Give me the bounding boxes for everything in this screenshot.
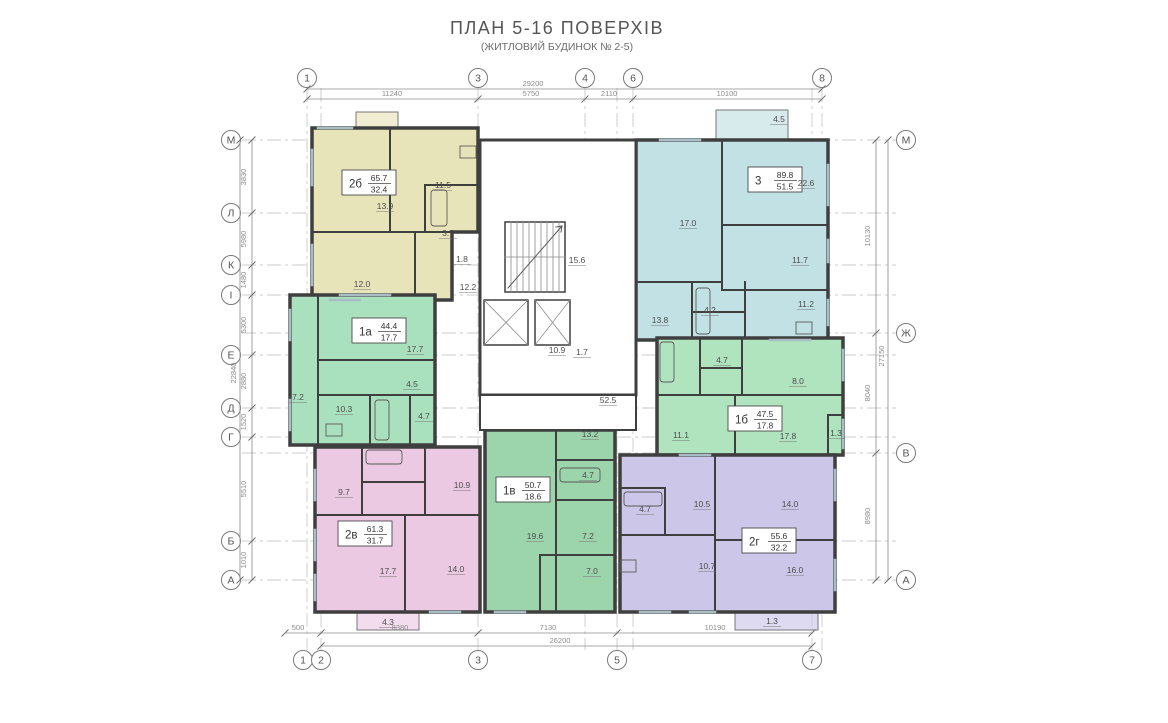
axis-bubble-label: 3 bbox=[475, 655, 481, 667]
dimension-label: 8040 bbox=[863, 385, 872, 402]
apartment-2b-floor bbox=[312, 128, 478, 300]
room-area-label: 12.2 bbox=[460, 282, 477, 292]
room-area-label: 1.7 bbox=[576, 347, 588, 357]
dimension-label: 11240 bbox=[382, 89, 402, 98]
apartment-id: 1в bbox=[503, 486, 516, 498]
apartment-living-area: 31.7 bbox=[367, 536, 384, 546]
axis-bubble: 6 bbox=[624, 69, 643, 88]
apartment-total-area: 61.3 bbox=[367, 524, 384, 534]
dimension-label: 5750 bbox=[523, 89, 540, 98]
apartment-2g bbox=[620, 455, 835, 630]
axis-bubble-label: В bbox=[902, 448, 909, 460]
plan-subtitle: (ЖИТЛОВИЙ БУДИНОК № 2-5) bbox=[481, 40, 633, 53]
room-area-label: 13.9 bbox=[377, 201, 394, 211]
room-area-label: 4.7 bbox=[418, 411, 430, 421]
room-area-label: 17.0 bbox=[680, 218, 697, 228]
dimension-label: 2110 bbox=[601, 89, 617, 98]
room-area-label: 17.8 bbox=[780, 431, 797, 441]
axis-bubble: 2 bbox=[312, 651, 331, 670]
axis-bubble: I bbox=[222, 286, 241, 305]
apartment-label-box: 2г55.632.2 bbox=[742, 528, 796, 553]
room-area-label: 15.6 bbox=[569, 255, 586, 265]
room-area-label: 52.5 bbox=[600, 395, 617, 405]
room-area-label: 4.7 bbox=[716, 355, 728, 365]
axis-bubble: Л bbox=[222, 204, 241, 223]
axis-bubble-label: I bbox=[230, 290, 233, 302]
room-area-label: 17.7 bbox=[380, 566, 397, 576]
room-area-label: 9.7 bbox=[338, 487, 350, 497]
room-area-label: 1.3 bbox=[766, 616, 778, 626]
axis-bubble: А bbox=[222, 571, 241, 590]
axis-bubble-label: Л bbox=[228, 208, 235, 220]
room-area-label: 4.7 bbox=[582, 470, 594, 480]
axis-bubble: В bbox=[897, 444, 916, 463]
room-area-label: 4.3 bbox=[382, 617, 394, 627]
apartment-id: 1б bbox=[735, 415, 748, 427]
axis-bubble: 7 bbox=[803, 651, 822, 670]
apartment-total-area: 50.7 bbox=[525, 480, 542, 490]
room-area-label: 16.0 bbox=[787, 565, 804, 575]
room-area-label: 8.0 bbox=[792, 376, 804, 386]
room-area-label: 14.0 bbox=[782, 499, 799, 509]
dimension-label: 8980 bbox=[863, 508, 872, 525]
apartment-total-area: 55.6 bbox=[771, 531, 788, 541]
room-area-label: 17.7 bbox=[407, 344, 424, 354]
room-area-label: 11.2 bbox=[798, 299, 814, 309]
room-area-label: 11.1 bbox=[673, 430, 689, 440]
axis-bubble: Д bbox=[222, 399, 241, 418]
room-area-label: 4.2 bbox=[704, 305, 716, 315]
room-area-label: 12.0 bbox=[354, 279, 371, 289]
axis-bubble: Е bbox=[222, 346, 241, 365]
axis-bubble: 8 bbox=[813, 69, 832, 88]
room-area-label: 13.8 bbox=[652, 315, 669, 325]
apartment-living-area: 32.2 bbox=[771, 543, 788, 553]
axis-bubble: К bbox=[222, 256, 241, 275]
apartment-id: 1а bbox=[359, 327, 372, 339]
room-area-label: 3.7 bbox=[442, 228, 454, 238]
apartment-id: 2г bbox=[749, 537, 760, 549]
apartment-id: 2в bbox=[345, 530, 358, 542]
room-area-label: 11.7 bbox=[792, 255, 808, 265]
axis-bubble-label: Е bbox=[227, 350, 234, 362]
axis-bubble-label: 4 bbox=[582, 73, 588, 85]
room-area-label: 1.8 bbox=[456, 254, 468, 264]
axis-bubble: Б bbox=[222, 532, 241, 551]
apartment-living-area: 17.8 bbox=[757, 421, 774, 431]
apartment-id: 2б bbox=[349, 179, 362, 191]
dimension-label: 10190 bbox=[705, 623, 726, 632]
room-area-label: 11.5 bbox=[435, 180, 451, 190]
axis-bubble-label: Г bbox=[228, 432, 234, 444]
room-area-label: 14.0 bbox=[448, 564, 465, 574]
core bbox=[480, 140, 636, 430]
axis-bubble-label: М bbox=[227, 135, 236, 147]
axis-bubble-label: 6 bbox=[630, 73, 636, 85]
axis-bubble-label: Б bbox=[228, 536, 235, 548]
room-area-label: 10.9 bbox=[454, 480, 471, 490]
apartment-label-box: 389.851.5 bbox=[748, 167, 802, 192]
apartment-1a-floor bbox=[290, 295, 435, 445]
apartment-total-area: 65.7 bbox=[371, 173, 388, 183]
axis-bubble: 1 bbox=[294, 651, 313, 670]
apartment-living-area: 32.4 bbox=[371, 185, 388, 195]
apartment-total-area: 47.5 bbox=[757, 409, 774, 419]
apartment-living-area: 18.6 bbox=[525, 492, 542, 502]
axis-bubble-label: 7 bbox=[809, 655, 815, 667]
room-area-label: 7.0 bbox=[586, 566, 598, 576]
room-area-label: 19.6 bbox=[527, 531, 544, 541]
balcony-2b bbox=[356, 112, 398, 128]
floor-plan-drawing: ПЛАН 5-16 ПОВЕРХІВ (ЖИТЛОВИЙ БУДИНОК № 2… bbox=[0, 0, 1168, 723]
dimension-label: 29200 bbox=[523, 79, 544, 88]
room-area-label: 4.5 bbox=[773, 114, 785, 124]
apartment-label-box: 1б47.517.8 bbox=[728, 406, 782, 431]
room-area-label: 10.5 bbox=[694, 499, 711, 509]
dimension-label: 26200 bbox=[550, 636, 571, 645]
axis-bubble: М bbox=[222, 131, 241, 150]
axis-bubble-label: М bbox=[902, 135, 911, 147]
axis-bubble-label: 8 bbox=[819, 73, 825, 85]
room-area-label: 13.2 bbox=[582, 429, 599, 439]
apartment-label-box: 2б65.732.4 bbox=[342, 170, 396, 195]
apartment-1v-floor bbox=[485, 430, 615, 612]
room-area-label: 4.5 bbox=[406, 379, 418, 389]
apartment-1v bbox=[485, 430, 615, 612]
apartment-label-box: 1а44.417.7 bbox=[352, 318, 406, 343]
apartment-label-box: 1в50.718.6 bbox=[496, 477, 550, 502]
room-area-label: 22.6 bbox=[798, 178, 815, 188]
room-area-label: 10.7 bbox=[699, 561, 716, 571]
axis-bubble-label: А bbox=[227, 575, 234, 587]
apartment-total-area: 89.8 bbox=[777, 170, 794, 180]
axis-bubble: Ж bbox=[897, 324, 916, 343]
axis-bubble-label: К bbox=[228, 260, 235, 272]
dimension-label: 7130 bbox=[540, 623, 557, 632]
axis-bubble-label: 3 bbox=[475, 73, 481, 85]
dimension-label: 27150 bbox=[877, 346, 886, 367]
apartment-total-area: 44.4 bbox=[381, 321, 398, 331]
apartment-2b bbox=[312, 112, 478, 300]
dimension-label: 10100 bbox=[717, 89, 738, 98]
axis-bubble-label: А bbox=[902, 575, 909, 587]
axis-bubble: Г bbox=[222, 428, 241, 447]
room-area-label: 4.7 bbox=[639, 504, 651, 514]
room-area-label: 1.3 bbox=[830, 428, 842, 438]
room-area-label: 7.2 bbox=[582, 531, 594, 541]
apartment-id: 3 bbox=[755, 176, 761, 188]
apartment-living-area: 51.5 bbox=[777, 182, 794, 192]
axis-bubble: 3 bbox=[469, 69, 488, 88]
apartment-1a bbox=[290, 295, 435, 445]
axis-bubble-label: 5 bbox=[614, 655, 620, 667]
room-area-label: 7.2 bbox=[292, 392, 304, 402]
room-area-label: 10.9 bbox=[549, 345, 566, 355]
axis-bubble-label: 1 bbox=[304, 73, 310, 85]
axis-bubble: 5 bbox=[608, 651, 627, 670]
axis-bubble: 3 bbox=[469, 651, 488, 670]
axis-bubble: А bbox=[897, 571, 916, 590]
apartment-living-area: 17.7 bbox=[381, 333, 398, 343]
axis-bubble: М bbox=[897, 131, 916, 150]
axis-bubble-label: 2 bbox=[318, 655, 324, 667]
dimension-label: 500 bbox=[292, 623, 305, 632]
apartment-2g-floor bbox=[620, 455, 835, 612]
axis-bubble-label: Ж bbox=[901, 328, 911, 340]
room-area-label: 10.3 bbox=[336, 404, 353, 414]
axis-bubble-label: Д bbox=[227, 403, 234, 415]
dimension-label: 22840 bbox=[229, 363, 238, 384]
axis-bubble: 4 bbox=[576, 69, 595, 88]
apartment-label-box: 2в61.331.7 bbox=[338, 521, 392, 546]
axis-bubble-label: 1 bbox=[300, 655, 306, 667]
plan-title: ПЛАН 5-16 ПОВЕРХІВ bbox=[450, 18, 664, 38]
dimension-label: 10130 bbox=[863, 226, 872, 247]
axis-bubble: 1 bbox=[298, 69, 317, 88]
